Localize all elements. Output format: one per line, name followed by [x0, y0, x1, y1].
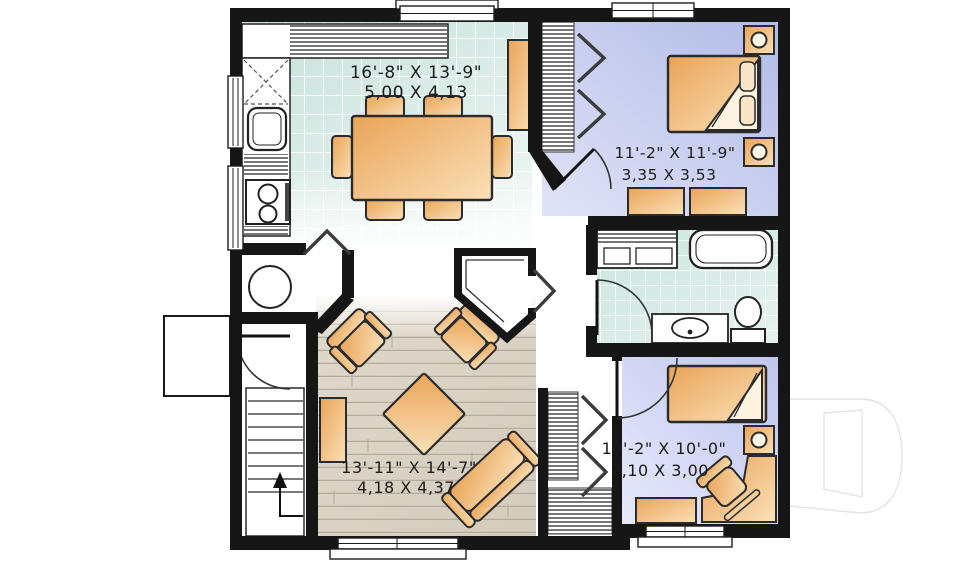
vanity-sink: [652, 314, 728, 343]
porch: [164, 316, 230, 396]
lamp-icon: [752, 433, 767, 448]
pillow: [740, 96, 755, 125]
window: [396, 0, 498, 21]
dining-chair: [332, 136, 352, 178]
window: [228, 76, 243, 148]
water-heater-icon: [249, 266, 291, 308]
laundry-unit: [597, 230, 677, 268]
bedroom2-label-metric: 3,10 X 3,00: [611, 461, 709, 480]
window: [330, 538, 466, 559]
bedroom2-label-imperial: 10'-2" X 10'-0": [602, 439, 727, 458]
floor-plan-page: 16'-8" X 13'-9" 5,00 X 4,13 11'-2" X 11'…: [0, 0, 960, 569]
kitchen-label-imperial: 16'-8" X 13'-9": [350, 63, 482, 83]
pillow: [740, 62, 755, 91]
dining-table: [352, 116, 492, 200]
dresser: [690, 188, 746, 215]
livingroom-label-imperial: 13'-11" X 14'-7": [341, 458, 476, 477]
window: [228, 166, 243, 250]
night-table: [744, 138, 774, 166]
entry: [164, 316, 290, 396]
hall-closet-lower: [548, 488, 612, 534]
staircase: [246, 388, 304, 536]
front-door-swing-arc: [237, 336, 290, 389]
kitchen-label-metric: 5,00 X 4,13: [364, 83, 468, 103]
night-table: [744, 26, 774, 54]
wall-right: [778, 8, 790, 535]
watermark-d-logo: [790, 399, 902, 513]
dresser: [628, 188, 684, 215]
dining-chair: [492, 136, 512, 178]
kitchen-range: [246, 180, 290, 224]
wall-top: [230, 8, 790, 22]
dining-chair: [366, 198, 404, 220]
bathtub: [690, 230, 772, 268]
dining-chair: [424, 198, 462, 220]
window: [612, 3, 694, 18]
lamp-icon: [752, 33, 767, 48]
lamp-icon: [752, 145, 767, 160]
bedroom1-label-metric: 3,35 X 3,53: [622, 166, 717, 184]
bifold-chevron: [534, 270, 554, 312]
toilet-icon: [731, 297, 765, 343]
night-table: [744, 426, 774, 454]
kitchen-sink: [248, 108, 286, 150]
dresser: [636, 498, 696, 523]
utility-room: [249, 266, 291, 308]
bedroom1-closet: [542, 14, 574, 152]
bifold-chevron: [582, 396, 606, 444]
hall-closet: [548, 392, 578, 480]
window: [638, 526, 732, 547]
floor-plan-svg: 16'-8" X 13'-9" 5,00 X 4,13 11'-2" X 11'…: [0, 0, 960, 569]
livingroom-label-metric: 4,18 X 4,37: [357, 478, 455, 497]
tv-console: [320, 398, 346, 462]
bedroom1-label-imperial: 11'-2" X 11'-9": [614, 144, 735, 162]
